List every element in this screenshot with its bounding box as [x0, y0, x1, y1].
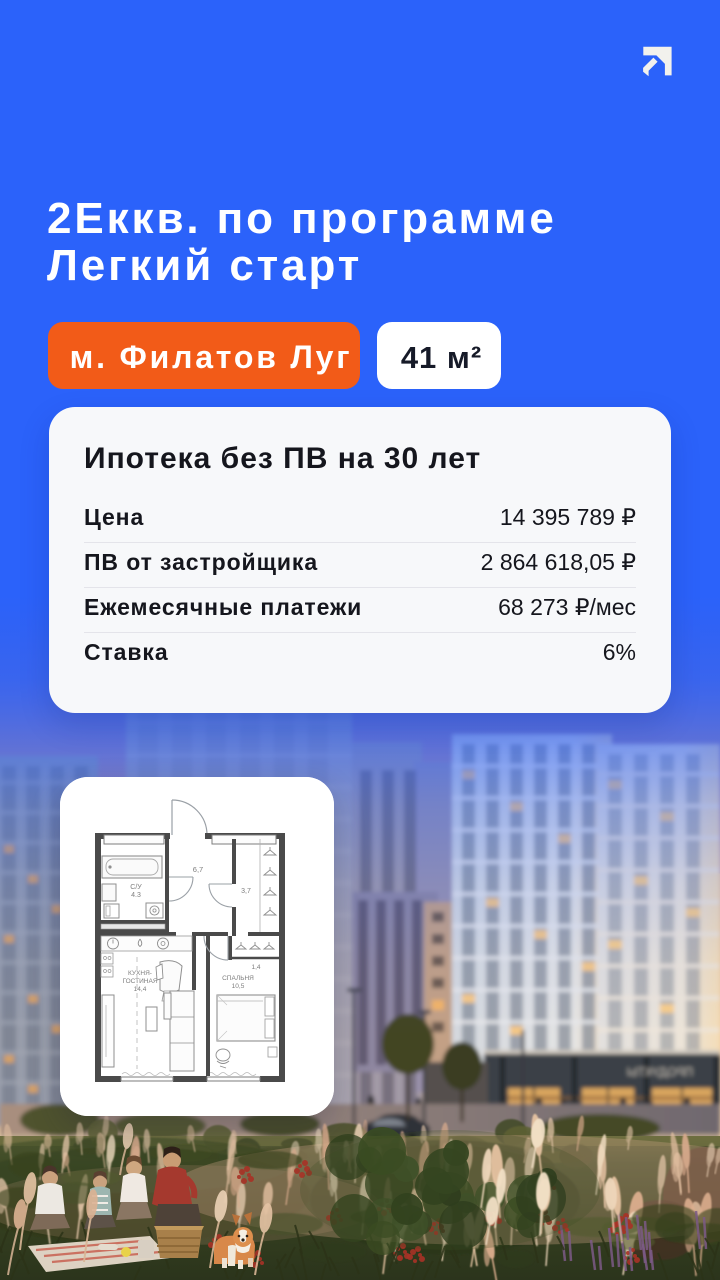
svg-text:СПАЛЬНЯ: СПАЛЬНЯ	[222, 975, 254, 982]
svg-text:ГОСТИНАЯ: ГОСТИНАЯ	[122, 978, 157, 985]
svg-text:3,7: 3,7	[241, 888, 251, 895]
svg-text:КУХНЯ-: КУХНЯ-	[128, 970, 152, 977]
svg-text:1,4: 1,4	[251, 964, 260, 971]
svg-text:4.3: 4.3	[131, 892, 141, 899]
svg-text:14,4: 14,4	[134, 986, 147, 993]
svg-text:С/У: С/У	[130, 884, 142, 891]
svg-text:10,5: 10,5	[232, 983, 245, 990]
svg-text:6,7: 6,7	[193, 865, 203, 874]
